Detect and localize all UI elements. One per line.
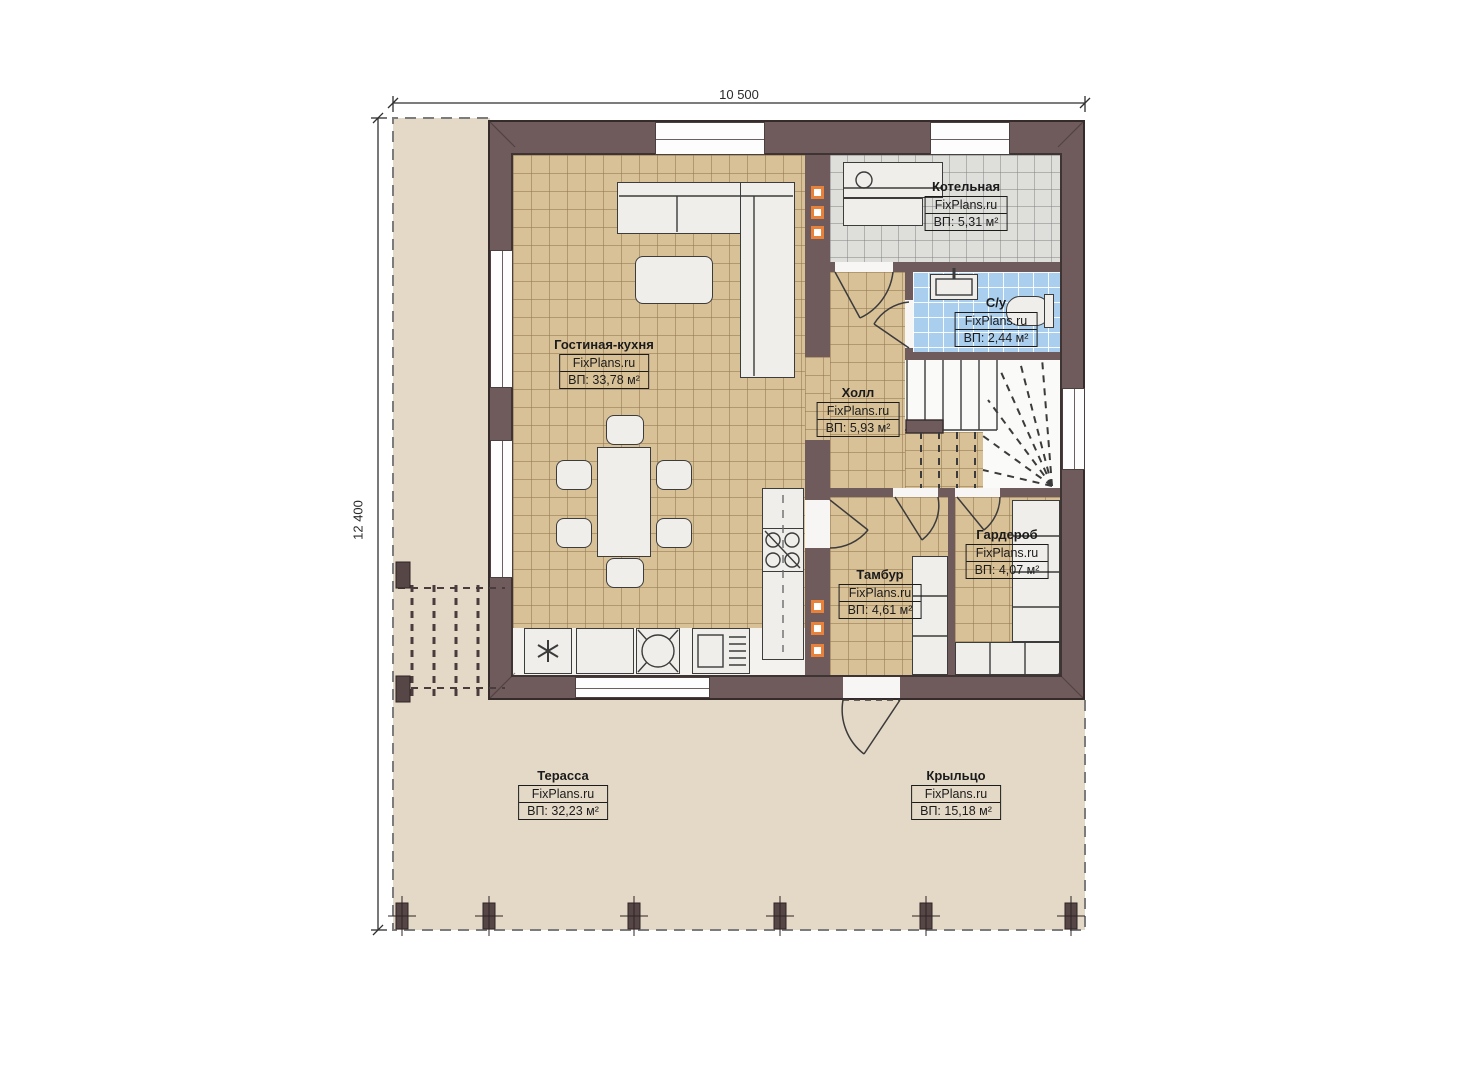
brand-label: FixPlans.ru [840,585,921,602]
brand-label: FixPlans.ru [519,786,607,803]
room-info-box: FixPlans.ru ВП: 4,07 м² [966,544,1049,579]
area-label: ВП: 33,78 м² [560,372,648,388]
room-name: Крыльцо [911,768,1001,783]
area-label: ВП: 15,18 м² [912,803,1000,819]
area-label: ВП: 4,07 м² [967,562,1048,578]
room-info-box: FixPlans.ru ВП: 32,23 м² [518,785,608,820]
room-name: Холл [817,385,900,400]
room-label-terrace: Терасса FixPlans.ru ВП: 32,23 м² [518,768,608,820]
room-label-hall: Холл FixPlans.ru ВП: 5,93 м² [817,385,900,437]
room-name: Терасса [518,768,608,783]
brand-label: FixPlans.ru [818,403,899,420]
dimension-left [371,113,387,935]
area-label: ВП: 4,61 м² [840,602,921,618]
area-label: ВП: 32,23 м² [519,803,607,819]
pergola-posts [396,562,410,702]
area-label: ВП: 5,93 м² [818,420,899,436]
dimension-width-label: 10 500 [719,87,759,102]
room-label-living: Гостиная-кухня FixPlans.ru ВП: 33,78 м² [554,337,654,389]
fixture-details [538,172,1060,675]
room-info-box: FixPlans.ru ВП: 5,93 м² [817,402,900,437]
brand-label: FixPlans.ru [560,355,648,372]
room-name: Тамбур [839,567,922,582]
area-label: ВП: 2,44 м² [956,330,1037,346]
room-info-box: FixPlans.ru ВП: 15,18 м² [911,785,1001,820]
brand-label: FixPlans.ru [926,197,1007,214]
area-label: ВП: 5,31 м² [926,214,1007,230]
room-name: Гостиная-кухня [554,337,654,352]
room-name: Гардероб [966,527,1049,542]
brand-label: FixPlans.ru [967,545,1048,562]
snowflake-icon [538,640,558,662]
room-info-box: FixPlans.ru ВП: 2,44 м² [955,312,1038,347]
room-name: С/у [955,295,1038,310]
pergola-grid [398,585,505,702]
room-info-box: FixPlans.ru ВП: 33,78 м² [559,354,649,389]
room-label-porch: Крыльцо FixPlans.ru ВП: 15,18 м² [911,768,1001,820]
floor-plan-canvas: 10 500 12 400 Гостиная-кухня FixPlans.ru… [0,0,1473,1080]
room-name: Котельная [925,179,1008,194]
plan-linework [0,0,1473,1080]
dimension-height-label: 12 400 [351,500,366,540]
room-label-wardrobe: Гардероб FixPlans.ru ВП: 4,07 м² [966,527,1049,579]
stairs [905,358,1052,488]
room-label-bath: С/у FixPlans.ru ВП: 2,44 м² [955,295,1038,347]
brand-label: FixPlans.ru [912,786,1000,803]
room-label-vestibule: Тамбур FixPlans.ru ВП: 4,61 м² [839,567,922,619]
brand-label: FixPlans.ru [956,313,1037,330]
room-label-boiler: Котельная FixPlans.ru ВП: 5,31 м² [925,179,1008,231]
room-info-box: FixPlans.ru ВП: 4,61 м² [839,584,922,619]
room-info-box: FixPlans.ru ВП: 5,31 м² [925,196,1008,231]
